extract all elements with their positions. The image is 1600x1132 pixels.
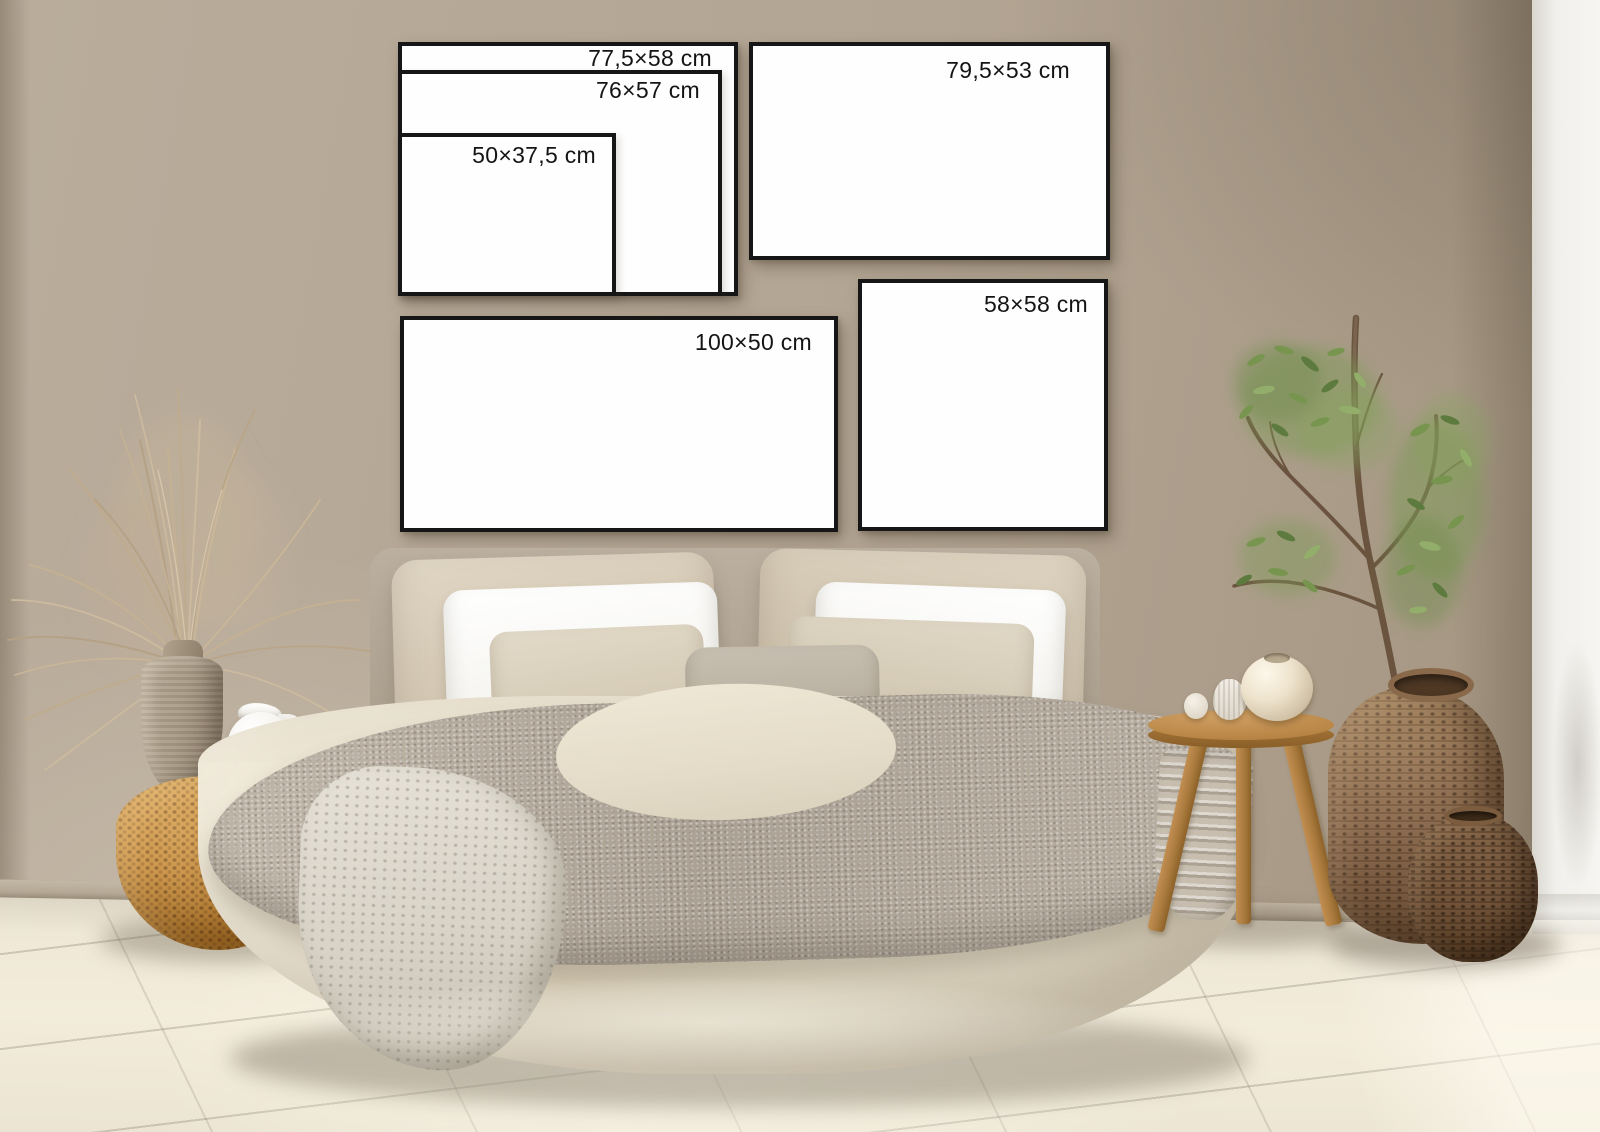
duvet-hem-highlight — [260, 975, 1160, 1070]
frame-58x58: 58×58 cm — [858, 279, 1108, 531]
decor-egg-object — [1184, 693, 1208, 719]
round-vase-mouth — [1264, 653, 1290, 663]
round-ceramic-vase — [1241, 655, 1313, 721]
table-leg — [1236, 736, 1251, 924]
frame-size-label: 50×37,5 cm — [472, 143, 596, 168]
frame-77-5x58: 77,5×58 cm 76×57 cm 50×37,5 cm — [398, 42, 738, 296]
bedroom-mockup-scene: 77,5×58 cm 76×57 cm 50×37,5 cm 79,5×53 c… — [0, 0, 1600, 1132]
frame-79-5x53: 79,5×53 cm — [749, 42, 1110, 260]
frame-size-label: 100×50 cm — [695, 330, 812, 355]
frame-100x50: 100×50 cm — [400, 316, 838, 532]
frame-size-label: 58×58 cm — [984, 292, 1088, 317]
frame-50x37-5: 50×37,5 cm — [398, 133, 616, 296]
frame-size-label: 77,5×58 cm — [588, 46, 712, 71]
large-wicker-vase-rim — [1388, 668, 1474, 702]
small-wicker-pot-rim — [1444, 806, 1502, 826]
small-wicker-pot — [1408, 812, 1538, 962]
frame-size-label: 76×57 cm — [596, 78, 700, 103]
frame-size-label: 79,5×53 cm — [946, 58, 1070, 83]
green-plant-branches — [1160, 290, 1560, 730]
